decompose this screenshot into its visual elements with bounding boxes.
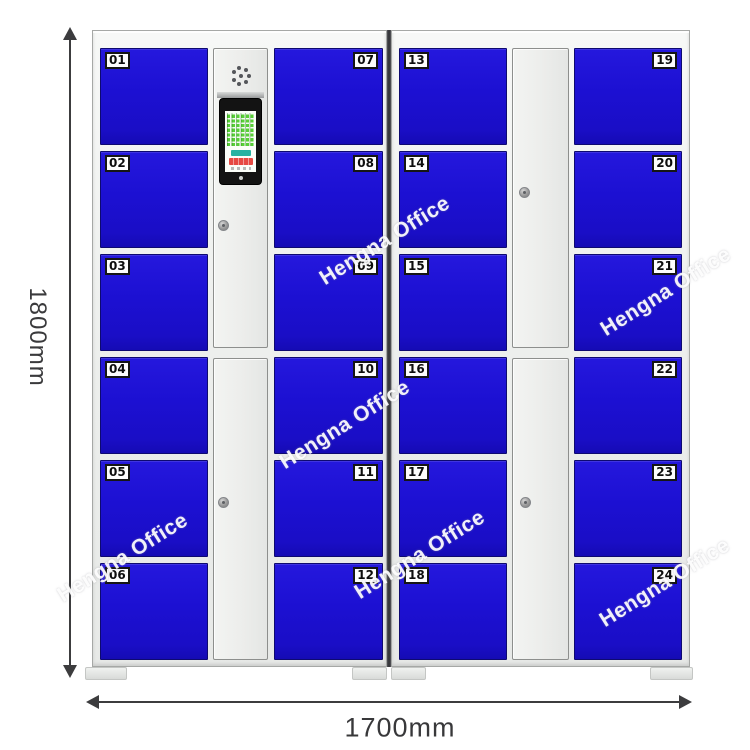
door-number-label: 02 — [105, 155, 130, 172]
door-number-label: 06 — [105, 567, 130, 584]
screen-cancel-button — [229, 158, 253, 165]
door-number-label: 01 — [105, 52, 130, 69]
door-number-label: 04 — [105, 361, 130, 378]
locker-door-03: 03 — [100, 254, 208, 351]
locker-door-02: 02 — [100, 151, 208, 248]
locker-door-06: 06 — [100, 563, 208, 660]
locker-door-05: 05 — [100, 460, 208, 557]
locker-door-23: 23 — [574, 460, 682, 557]
locker-door-04: 04 — [100, 357, 208, 454]
locker-door-11: 11 — [274, 460, 383, 557]
height-dimension-line — [69, 38, 71, 667]
cabinet-foot — [352, 667, 387, 680]
door-number-label: 23 — [652, 464, 677, 481]
cam-lock-icon — [218, 497, 229, 508]
locker-door-19: 19 — [574, 48, 682, 145]
door-number-label: 11 — [353, 464, 378, 481]
door-column-07-12: 070809101112 — [274, 48, 383, 660]
touchscreen — [225, 111, 256, 172]
height-dimension-label: 1800mm — [23, 287, 51, 386]
door-number-label: 17 — [404, 464, 429, 481]
door-column-19-24: 192021222324 — [574, 48, 682, 660]
center-column-lower-door — [512, 358, 569, 660]
door-number-label: 05 — [105, 464, 130, 481]
locker-door-16: 16 — [399, 357, 507, 454]
door-number-label: 08 — [353, 155, 378, 172]
door-column-13-18: 131415161718 — [399, 48, 507, 660]
cabinet-foot — [85, 667, 127, 680]
door-number-label: 09 — [353, 258, 378, 275]
door-number-label: 03 — [105, 258, 130, 275]
locker-door-24: 24 — [574, 563, 682, 660]
door-number-label: 22 — [652, 361, 677, 378]
cabinet-right: 131415161718 192021222324 — [391, 30, 690, 667]
cam-lock-icon — [519, 187, 530, 198]
dimension-arrowhead-down — [63, 665, 77, 678]
width-dimension-line — [97, 701, 681, 703]
cabinet-left: 010203040506 — [92, 30, 387, 667]
locker-cabinets: 010203040506 — [92, 30, 690, 667]
door-number-label: 07 — [353, 52, 378, 69]
screen-confirm-button — [231, 150, 251, 156]
door-number-label: 19 — [652, 52, 677, 69]
dimension-arrowhead-right — [679, 695, 692, 709]
locker-door-14: 14 — [399, 151, 507, 248]
locker-door-12: 12 — [274, 563, 383, 660]
locker-door-18: 18 — [399, 563, 507, 660]
control-column-lower-door — [213, 358, 268, 660]
door-number-label: 24 — [652, 567, 677, 584]
door-number-label: 16 — [404, 361, 429, 378]
locker-door-01: 01 — [100, 48, 208, 145]
door-number-label: 18 — [404, 567, 429, 584]
touchscreen-bezel — [219, 98, 262, 185]
home-button-icon — [239, 176, 243, 180]
cabinet-foot — [391, 667, 426, 680]
smart-locker-product-image: 1800mm 1700mm 010203040506 — [0, 0, 750, 750]
locker-door-15: 15 — [399, 254, 507, 351]
door-number-label: 13 — [404, 52, 429, 69]
locker-door-13: 13 — [399, 48, 507, 145]
center-column-upper-door — [512, 48, 569, 348]
door-number-label: 15 — [404, 258, 429, 275]
cam-lock-icon — [520, 497, 531, 508]
door-number-label: 21 — [652, 258, 677, 275]
locker-door-07: 07 — [274, 48, 383, 145]
cabinet-foot — [650, 667, 693, 680]
width-dimension-label: 1700mm — [344, 713, 455, 744]
keypad-grid — [227, 113, 254, 146]
locker-door-17: 17 — [399, 460, 507, 557]
locker-door-21: 21 — [574, 254, 682, 351]
door-number-label: 14 — [404, 155, 429, 172]
door-number-label: 10 — [353, 361, 378, 378]
locker-door-20: 20 — [574, 151, 682, 248]
door-number-label: 12 — [353, 567, 378, 584]
locker-door-08: 08 — [274, 151, 383, 248]
locker-door-22: 22 — [574, 357, 682, 454]
door-column-01-06: 010203040506 — [100, 48, 208, 660]
locker-door-09: 09 — [274, 254, 383, 351]
screen-footer-text — [231, 167, 251, 170]
door-number-label: 20 — [652, 155, 677, 172]
cam-lock-icon — [218, 220, 229, 231]
locker-door-10: 10 — [274, 357, 383, 454]
speaker-grille-icon — [239, 74, 243, 78]
control-panel-door — [213, 48, 268, 348]
